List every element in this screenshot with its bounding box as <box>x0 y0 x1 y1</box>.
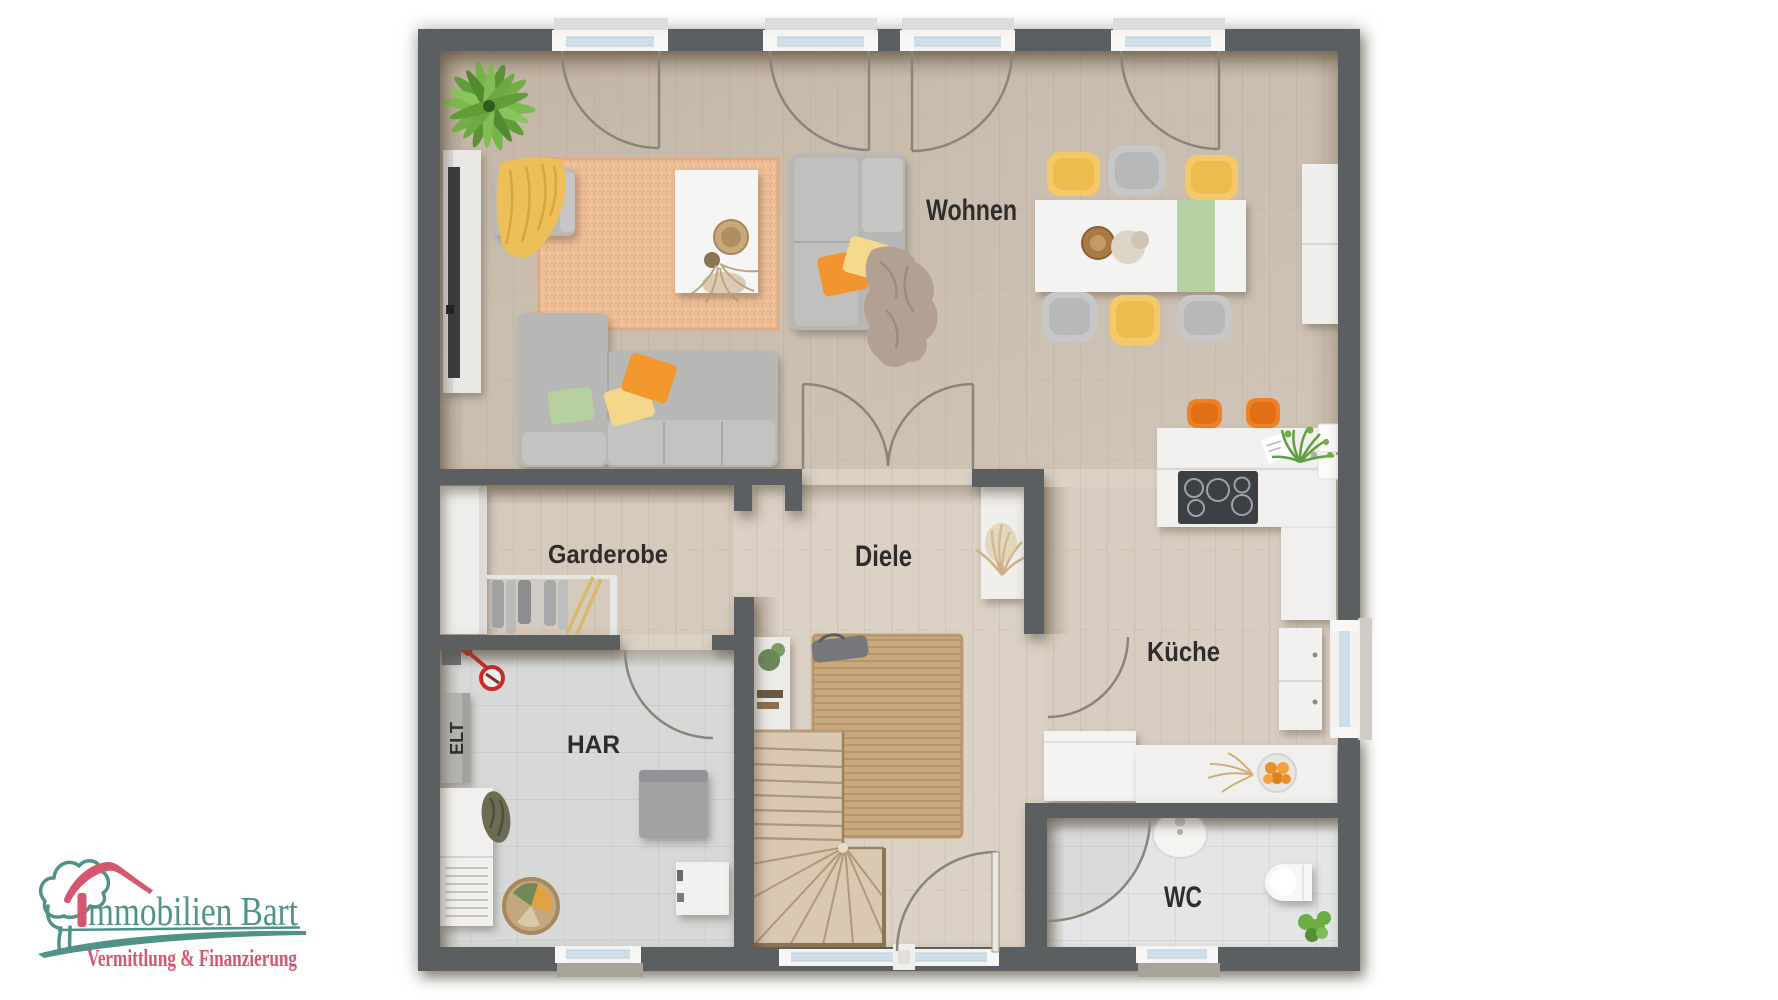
svg-text:ELT: ELT <box>447 722 467 755</box>
svg-text:Vermittlung & Finanzierung: Vermittlung & Finanzierung <box>87 946 297 972</box>
svg-text:Wohnen: Wohnen <box>926 194 1017 227</box>
svg-text:Diele: Diele <box>855 540 912 573</box>
svg-text:Garderobe: Garderobe <box>548 539 668 569</box>
svg-text:Küche: Küche <box>1147 636 1220 667</box>
svg-text:WC: WC <box>1164 881 1202 914</box>
svg-text:HAR: HAR <box>567 731 620 759</box>
